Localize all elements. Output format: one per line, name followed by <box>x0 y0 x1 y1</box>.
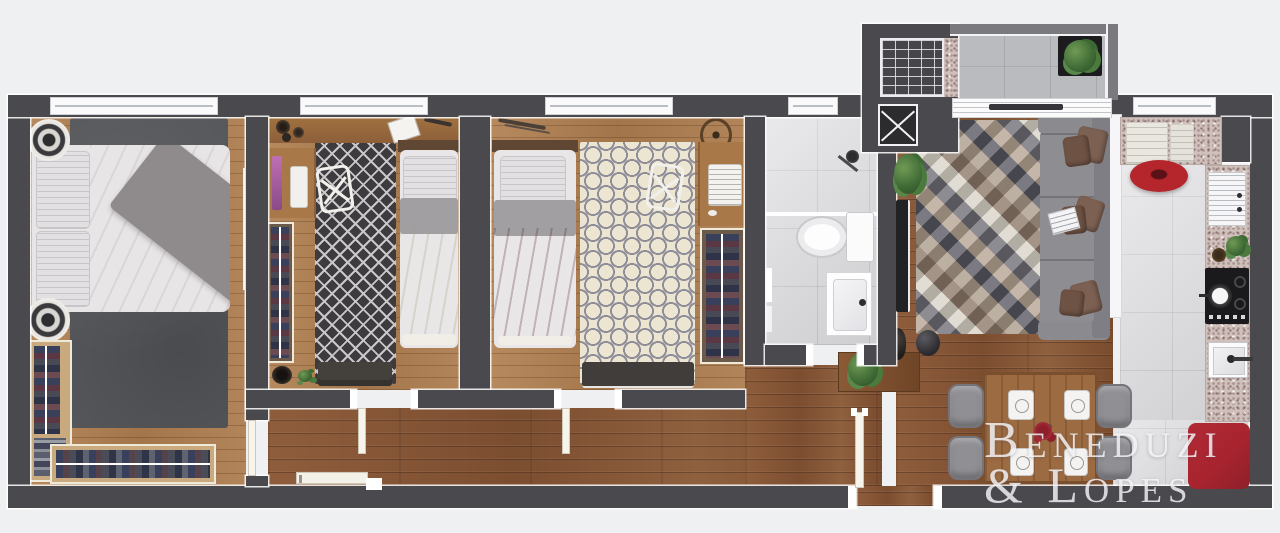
door-jamb <box>848 486 856 508</box>
entry-door-hinge <box>862 408 868 416</box>
pillow <box>403 156 457 202</box>
basket-decor <box>282 133 291 142</box>
desk-chair <box>645 162 686 213</box>
towel-rail <box>766 306 772 332</box>
master-closet-bottom <box>50 444 216 484</box>
shaft <box>878 104 918 146</box>
sofa <box>1038 114 1110 340</box>
laptop <box>708 164 742 206</box>
wall-bathroom-west <box>745 117 765 365</box>
basket-decor <box>276 120 290 134</box>
kitchen-herbs <box>1226 236 1246 256</box>
wall-bedrooms-south-b <box>412 390 560 408</box>
window-glass <box>305 105 423 107</box>
closet-rail <box>721 234 723 358</box>
red-duvet <box>494 228 576 340</box>
entry-threshold <box>856 486 934 506</box>
door-jamb <box>412 390 418 408</box>
burner <box>1234 276 1246 288</box>
rack-faucet <box>1237 193 1242 198</box>
door-handle <box>299 475 302 483</box>
towel-rail <box>766 268 772 302</box>
pan-handle <box>1199 294 1211 297</box>
kitchen-window <box>1133 97 1216 115</box>
desk-chair <box>315 164 355 214</box>
master-pouf <box>26 298 70 342</box>
kitchen-pinecone <box>1212 248 1226 262</box>
stair-landing <box>944 38 958 97</box>
floor-plan: Beneduzi & Lopes <box>0 0 1280 533</box>
wall-bedroom-divider <box>460 117 490 390</box>
mouse <box>708 210 717 216</box>
terrace-wall-right <box>1106 24 1118 100</box>
dining-chair <box>948 436 984 480</box>
floor-bowl <box>272 366 292 384</box>
bedroom2-bench <box>318 362 392 386</box>
door-jamb <box>858 345 864 365</box>
bed-frill <box>402 334 456 345</box>
door-jamb <box>806 345 812 365</box>
sink-faucet-arm <box>1233 357 1253 361</box>
toilet-tank <box>846 212 874 262</box>
bedroom2-door-leaf <box>358 408 366 454</box>
red-stand-mixer <box>1130 160 1188 192</box>
door-jamb <box>616 390 622 408</box>
bedroom2-window <box>300 97 428 115</box>
service-sliding-door <box>296 472 368 484</box>
small-plant <box>298 370 312 382</box>
entry-door-hinge <box>851 408 857 416</box>
terrace-plant <box>1064 40 1096 72</box>
rack-faucet <box>1237 207 1242 212</box>
living-vase <box>916 330 940 356</box>
sliding-door-rail <box>989 104 1063 110</box>
faucet <box>859 299 866 306</box>
wall-left <box>8 95 30 508</box>
door-jamb <box>366 478 382 490</box>
pan <box>1208 284 1232 308</box>
closet-rail <box>279 227 281 358</box>
hanging-clothes <box>34 346 60 434</box>
master-bed <box>32 145 230 312</box>
staircase <box>880 38 944 97</box>
sofa-cushion <box>1062 134 1092 167</box>
dish-rack <box>1208 172 1246 226</box>
bedroom2-desk <box>268 148 316 218</box>
window-glass <box>1138 105 1211 107</box>
dining-chair <box>948 384 984 428</box>
toilet-bowl <box>796 216 848 258</box>
burner <box>1234 298 1246 310</box>
kitchen-sink <box>1208 342 1248 378</box>
bedroom3-closet <box>700 228 745 364</box>
bedroom3-bed <box>492 140 578 345</box>
master-door-leaf <box>248 420 256 476</box>
wall-master-east-stub <box>246 476 268 486</box>
wall-right <box>1250 95 1272 508</box>
door-jamb <box>350 390 356 408</box>
bedroom3-bench <box>582 362 694 388</box>
window-glass <box>55 105 213 107</box>
kitchen-towels <box>1126 122 1168 164</box>
master-pillow <box>36 151 90 229</box>
master-pouf <box>28 119 70 161</box>
watermark-line2: & Lopes <box>984 465 1223 506</box>
monitor <box>272 156 282 210</box>
kitchen-towels <box>1170 124 1194 162</box>
basket-decor <box>293 127 304 138</box>
closet-rail <box>56 463 210 465</box>
bed-frill <box>498 336 572 345</box>
wall-master-east <box>246 117 268 420</box>
cream-duvet <box>400 228 458 338</box>
bedroom2-bed <box>398 140 460 345</box>
living-plant <box>894 154 922 194</box>
bedroom3-desk <box>698 142 747 226</box>
wall-bottom-west <box>8 486 856 508</box>
bathroom-vanity <box>826 272 872 336</box>
master-pillow <box>36 231 90 307</box>
bathroom-window <box>788 97 838 115</box>
cooktop <box>1205 268 1249 324</box>
wall-bathroom-south-a <box>765 345 812 365</box>
entry-door-leaf <box>855 412 864 488</box>
window-glass <box>550 105 668 107</box>
closet-rail <box>45 346 47 434</box>
terrace-wall-top <box>950 24 1116 36</box>
keyboard <box>290 166 308 208</box>
door-jamb <box>554 390 560 408</box>
wall-bathroom-east <box>878 117 896 365</box>
terrace-sliding-door <box>952 98 1112 118</box>
watermark: Beneduzi & Lopes <box>984 420 1223 506</box>
master-window <box>50 97 218 115</box>
cooktop-knobs <box>1209 315 1245 319</box>
living-tv-panel <box>896 200 910 312</box>
wall-bedrooms-south-c <box>616 390 745 408</box>
wall-kitchen-corner <box>1222 117 1250 162</box>
pillow <box>500 156 566 204</box>
door-jamb <box>934 486 942 508</box>
bedroom2-closet <box>266 222 294 363</box>
bedroom3-door-leaf <box>562 408 570 454</box>
bedroom3-window <box>545 97 673 115</box>
wall-bedrooms-south-a <box>246 390 356 408</box>
window-glass <box>793 105 833 107</box>
sofa-cushion <box>1059 289 1086 317</box>
